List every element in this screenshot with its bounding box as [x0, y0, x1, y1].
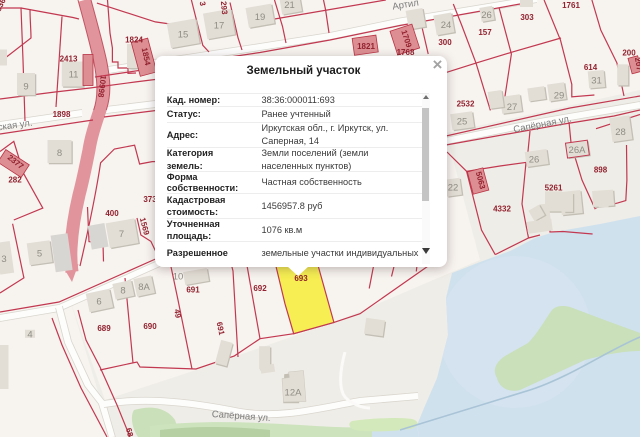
svg-text:1824: 1824 [125, 36, 143, 45]
svg-text:12А: 12А [285, 388, 303, 399]
svg-text:15: 15 [178, 30, 189, 41]
svg-text:22: 22 [448, 183, 459, 194]
svg-text:8А: 8А [138, 282, 150, 293]
svg-text:1761: 1761 [562, 1, 580, 10]
svg-text:11: 11 [69, 70, 79, 81]
svg-text:8: 8 [120, 286, 125, 297]
svg-text:10: 10 [173, 272, 184, 283]
svg-text:21: 21 [284, 0, 295, 11]
svg-text:690: 690 [143, 322, 157, 331]
svg-text:2413: 2413 [60, 55, 78, 64]
svg-text:689: 689 [97, 324, 111, 333]
svg-text:4: 4 [27, 330, 32, 341]
svg-text:691: 691 [186, 286, 200, 295]
svg-text:25: 25 [457, 117, 468, 128]
svg-text:27: 27 [507, 102, 518, 113]
svg-text:17: 17 [214, 21, 225, 32]
svg-text:400: 400 [105, 209, 119, 218]
svg-text:8: 8 [57, 148, 62, 159]
svg-text:4332: 4332 [493, 205, 511, 214]
svg-text:5261: 5261 [545, 184, 563, 193]
svg-text:300: 300 [438, 38, 452, 47]
svg-text:614: 614 [584, 63, 598, 72]
svg-text:19: 19 [255, 12, 266, 23]
svg-text:200: 200 [622, 49, 636, 58]
svg-text:9: 9 [23, 82, 28, 93]
svg-text:157: 157 [478, 28, 492, 37]
svg-text:24: 24 [441, 20, 452, 31]
svg-text:2532: 2532 [457, 100, 475, 109]
svg-text:26: 26 [529, 155, 540, 166]
svg-text:1898: 1898 [53, 110, 71, 119]
svg-text:3: 3 [1, 254, 6, 265]
svg-text:5: 5 [37, 249, 42, 260]
svg-text:293: 293 [219, 1, 229, 16]
svg-text:898: 898 [594, 166, 608, 175]
svg-text:7: 7 [119, 229, 124, 240]
svg-text:26А: 26А [569, 145, 587, 156]
svg-text:26: 26 [481, 10, 492, 21]
svg-text:29: 29 [554, 91, 565, 102]
svg-text:31: 31 [591, 76, 602, 87]
svg-text:1821: 1821 [357, 42, 375, 51]
svg-text:303: 303 [520, 13, 534, 22]
svg-text:6: 6 [96, 297, 101, 308]
svg-text:28: 28 [615, 127, 626, 138]
svg-text:282: 282 [8, 176, 22, 185]
svg-text:692: 692 [253, 284, 267, 293]
